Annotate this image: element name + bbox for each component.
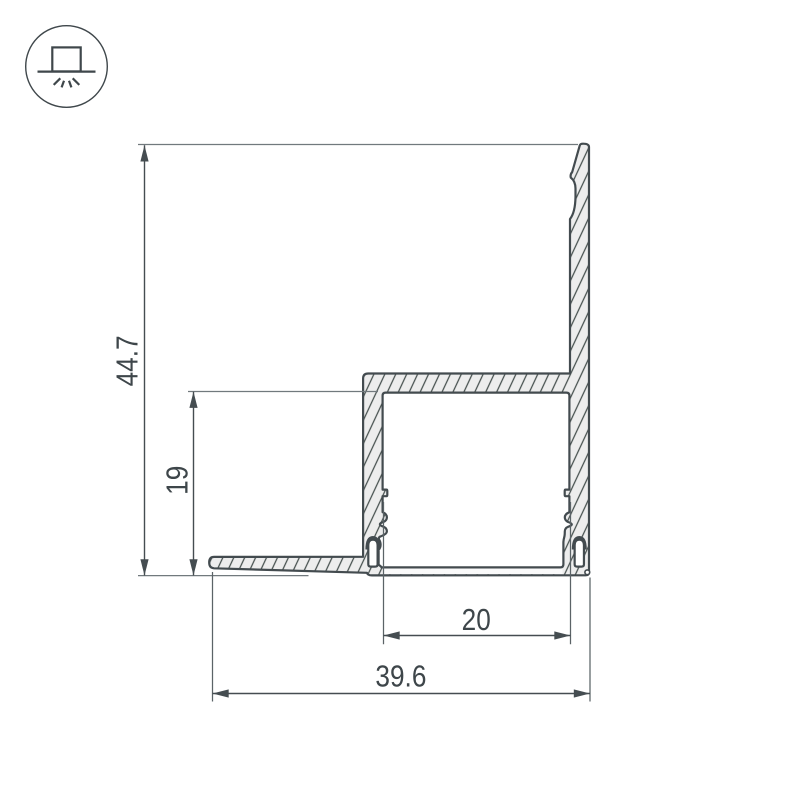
svg-text:44.7: 44.7 xyxy=(111,335,145,386)
svg-text:20: 20 xyxy=(462,603,491,637)
svg-text:39.6: 39.6 xyxy=(375,659,426,693)
svg-text:19: 19 xyxy=(161,466,195,495)
